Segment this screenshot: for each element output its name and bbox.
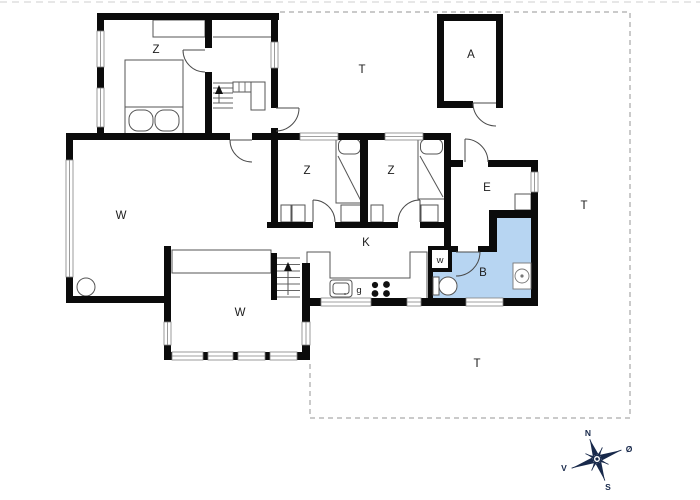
bunk-bed-1 bbox=[336, 137, 363, 203]
window bbox=[300, 133, 338, 140]
door-front-entrance bbox=[465, 139, 488, 162]
dresser bbox=[281, 205, 291, 222]
room-label-utility-cupboard: w bbox=[436, 255, 444, 266]
bunk-bed-2 bbox=[418, 137, 445, 199]
floor-plan-canvas: ZTAZZETWKwBgWT NØVS bbox=[0, 0, 700, 500]
compass-rose bbox=[564, 430, 629, 489]
window bbox=[302, 322, 310, 345]
window bbox=[164, 322, 171, 345]
wood-stove bbox=[77, 278, 95, 296]
room-label-bedroom-3: Z bbox=[387, 165, 394, 177]
room-label-kitchen: K bbox=[362, 237, 370, 249]
door-bedroom3 bbox=[398, 200, 420, 222]
window bbox=[66, 160, 73, 277]
window bbox=[238, 352, 265, 360]
loft-edge bbox=[172, 250, 271, 273]
compass-label-south: S bbox=[605, 482, 611, 492]
compass-label-east: Ø bbox=[626, 444, 633, 454]
window bbox=[208, 352, 233, 360]
window bbox=[407, 298, 421, 306]
stair-up-arrow bbox=[284, 262, 292, 271]
window bbox=[385, 133, 423, 140]
stair-up-arrow bbox=[215, 85, 223, 94]
room-label-cooker: g bbox=[356, 285, 361, 296]
room-label-bedroom-1: Z bbox=[152, 44, 159, 56]
room-label-entrance-hall: E bbox=[483, 182, 491, 194]
staircase-upper bbox=[213, 82, 265, 110]
floor-plan: ZTAZZETWKwBgWT NØVS bbox=[0, 0, 700, 500]
wardrobe bbox=[153, 20, 205, 37]
double-bed bbox=[125, 60, 183, 135]
door-bedroom1 bbox=[183, 50, 205, 72]
window bbox=[97, 88, 104, 127]
dresser bbox=[341, 205, 362, 222]
toilet bbox=[433, 277, 457, 295]
window bbox=[271, 42, 278, 68]
door-hall-living bbox=[230, 140, 252, 162]
window bbox=[97, 31, 104, 67]
dresser bbox=[292, 205, 305, 222]
staircase-lower bbox=[277, 258, 300, 297]
door-bedroom2 bbox=[313, 200, 335, 222]
kitchen-counter bbox=[307, 252, 427, 298]
entry-wardrobe bbox=[515, 194, 531, 210]
shower bbox=[513, 263, 531, 289]
compass-label-north: N bbox=[585, 428, 591, 438]
dresser bbox=[421, 205, 438, 222]
window bbox=[172, 352, 203, 360]
room-label-terrace-south: T bbox=[473, 358, 480, 370]
window bbox=[321, 298, 371, 306]
room-label-living-room-2: W bbox=[235, 307, 246, 319]
room-label-bathroom: B bbox=[479, 267, 487, 279]
kitchen-sink bbox=[330, 280, 352, 297]
room-label-annex: A bbox=[467, 49, 475, 61]
annex-floor bbox=[437, 14, 503, 108]
window bbox=[466, 298, 503, 306]
room-label-living-room: W bbox=[116, 210, 127, 222]
room-label-bedroom-2: Z bbox=[303, 165, 310, 177]
room-label-terrace-north: T bbox=[358, 64, 365, 76]
room-label-terrace-east: T bbox=[580, 200, 587, 212]
compass-label-west: V bbox=[561, 463, 567, 473]
stove-burners bbox=[372, 281, 390, 297]
window bbox=[531, 172, 538, 192]
dresser bbox=[371, 205, 383, 222]
window bbox=[270, 352, 297, 360]
door-east-exit bbox=[276, 108, 299, 131]
